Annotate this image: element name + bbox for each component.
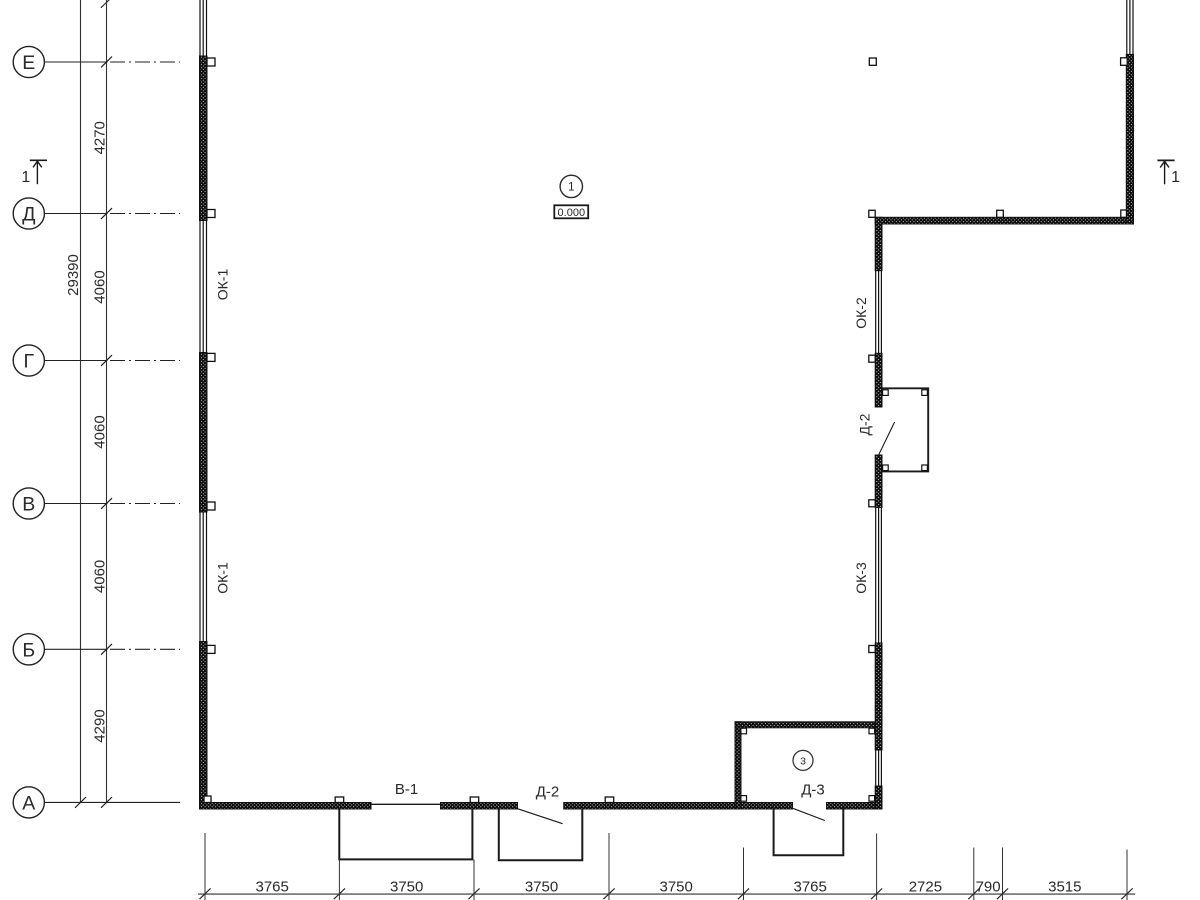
svg-text:3765: 3765 [256, 879, 289, 896]
svg-text:4290: 4290 [91, 709, 108, 742]
svg-text:Д-2: Д-2 [536, 784, 560, 801]
svg-text:3750: 3750 [390, 879, 423, 896]
svg-text:ОК-1: ОК-1 [215, 269, 231, 301]
svg-text:1: 1 [1171, 169, 1180, 186]
svg-text:А: А [22, 792, 35, 814]
svg-text:3750: 3750 [525, 879, 558, 896]
svg-text:ОК-1: ОК-1 [215, 562, 231, 594]
svg-text:В-1: В-1 [395, 781, 418, 798]
svg-text:2725: 2725 [909, 879, 942, 896]
svg-text:29390: 29390 [65, 254, 82, 296]
svg-text:0.000: 0.000 [558, 207, 586, 219]
svg-text:Е: Е [22, 52, 35, 74]
svg-text:3750: 3750 [660, 879, 693, 896]
svg-text:ОК-3: ОК-3 [853, 562, 869, 594]
svg-text:4270: 4270 [91, 121, 108, 154]
svg-text:4060: 4060 [91, 415, 108, 448]
svg-text:Д-3: Д-3 [801, 782, 825, 799]
svg-text:Д: Д [22, 204, 35, 226]
svg-text:Г: Г [24, 351, 35, 373]
svg-text:4060: 4060 [91, 560, 108, 593]
svg-text:В: В [22, 494, 35, 516]
svg-text:1: 1 [568, 182, 574, 194]
svg-text:Б: Б [22, 639, 35, 661]
svg-text:790: 790 [976, 879, 1001, 896]
svg-text:Д-2: Д-2 [857, 413, 873, 435]
svg-text:3515: 3515 [1048, 879, 1081, 896]
svg-text:4060: 4060 [91, 270, 108, 303]
svg-text:ОК-2: ОК-2 [853, 297, 869, 329]
svg-text:3765: 3765 [794, 879, 827, 896]
svg-text:1: 1 [21, 169, 30, 186]
svg-text:3: 3 [800, 755, 806, 767]
